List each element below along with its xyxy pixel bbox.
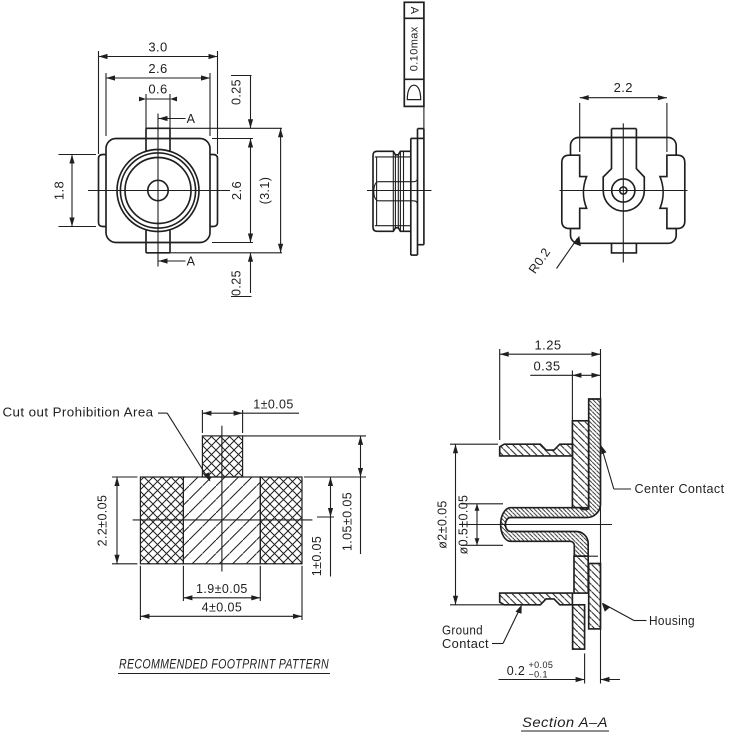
svg-text:A: A xyxy=(187,112,196,126)
svg-text:A: A xyxy=(187,255,196,269)
svg-text:Cut out Prohibition Area: Cut out Prohibition Area xyxy=(3,405,154,420)
svg-text:0.35: 0.35 xyxy=(534,359,561,374)
svg-text:0.10max: 0.10max xyxy=(409,26,421,71)
svg-text:(3.1): (3.1) xyxy=(258,177,272,205)
svg-text:−0.1: −0.1 xyxy=(529,670,548,680)
svg-text:2.2±0.05: 2.2±0.05 xyxy=(96,495,110,547)
svg-text:ø0.5±0.05: ø0.5±0.05 xyxy=(457,495,471,555)
svg-text:2.6: 2.6 xyxy=(229,181,244,200)
svg-text:0.2: 0.2 xyxy=(507,664,526,678)
svg-text:Contact: Contact xyxy=(442,636,489,651)
svg-text:2.6: 2.6 xyxy=(148,61,167,76)
svg-text:4±0.05: 4±0.05 xyxy=(202,601,243,615)
svg-text:A: A xyxy=(408,7,420,15)
svg-text:0.25: 0.25 xyxy=(230,79,244,105)
svg-text:1.25: 1.25 xyxy=(535,338,562,353)
svg-text:RECOMMENDED FOOTPRINT PATTER: RECOMMENDED FOOTPRINT PATTERN xyxy=(119,657,329,672)
svg-text:+0.05: +0.05 xyxy=(529,660,554,670)
svg-text:1±0.05: 1±0.05 xyxy=(310,536,324,577)
svg-text:Housing: Housing xyxy=(649,613,695,628)
svg-text:Center Contact: Center Contact xyxy=(635,481,725,496)
svg-text:0.6: 0.6 xyxy=(148,82,167,97)
svg-text:1.8: 1.8 xyxy=(52,181,67,200)
svg-text:1.05±0.05: 1.05±0.05 xyxy=(341,492,355,551)
svg-text:0.25: 0.25 xyxy=(230,270,244,296)
svg-text:1.9±0.05: 1.9±0.05 xyxy=(196,582,248,596)
svg-text:ø2±0.05: ø2±0.05 xyxy=(436,500,450,549)
svg-text:2.2: 2.2 xyxy=(614,80,633,95)
svg-text:1±0.05: 1±0.05 xyxy=(253,398,294,412)
svg-text:3.0: 3.0 xyxy=(148,40,167,55)
svg-text:Section A–A: Section A–A xyxy=(522,715,608,730)
